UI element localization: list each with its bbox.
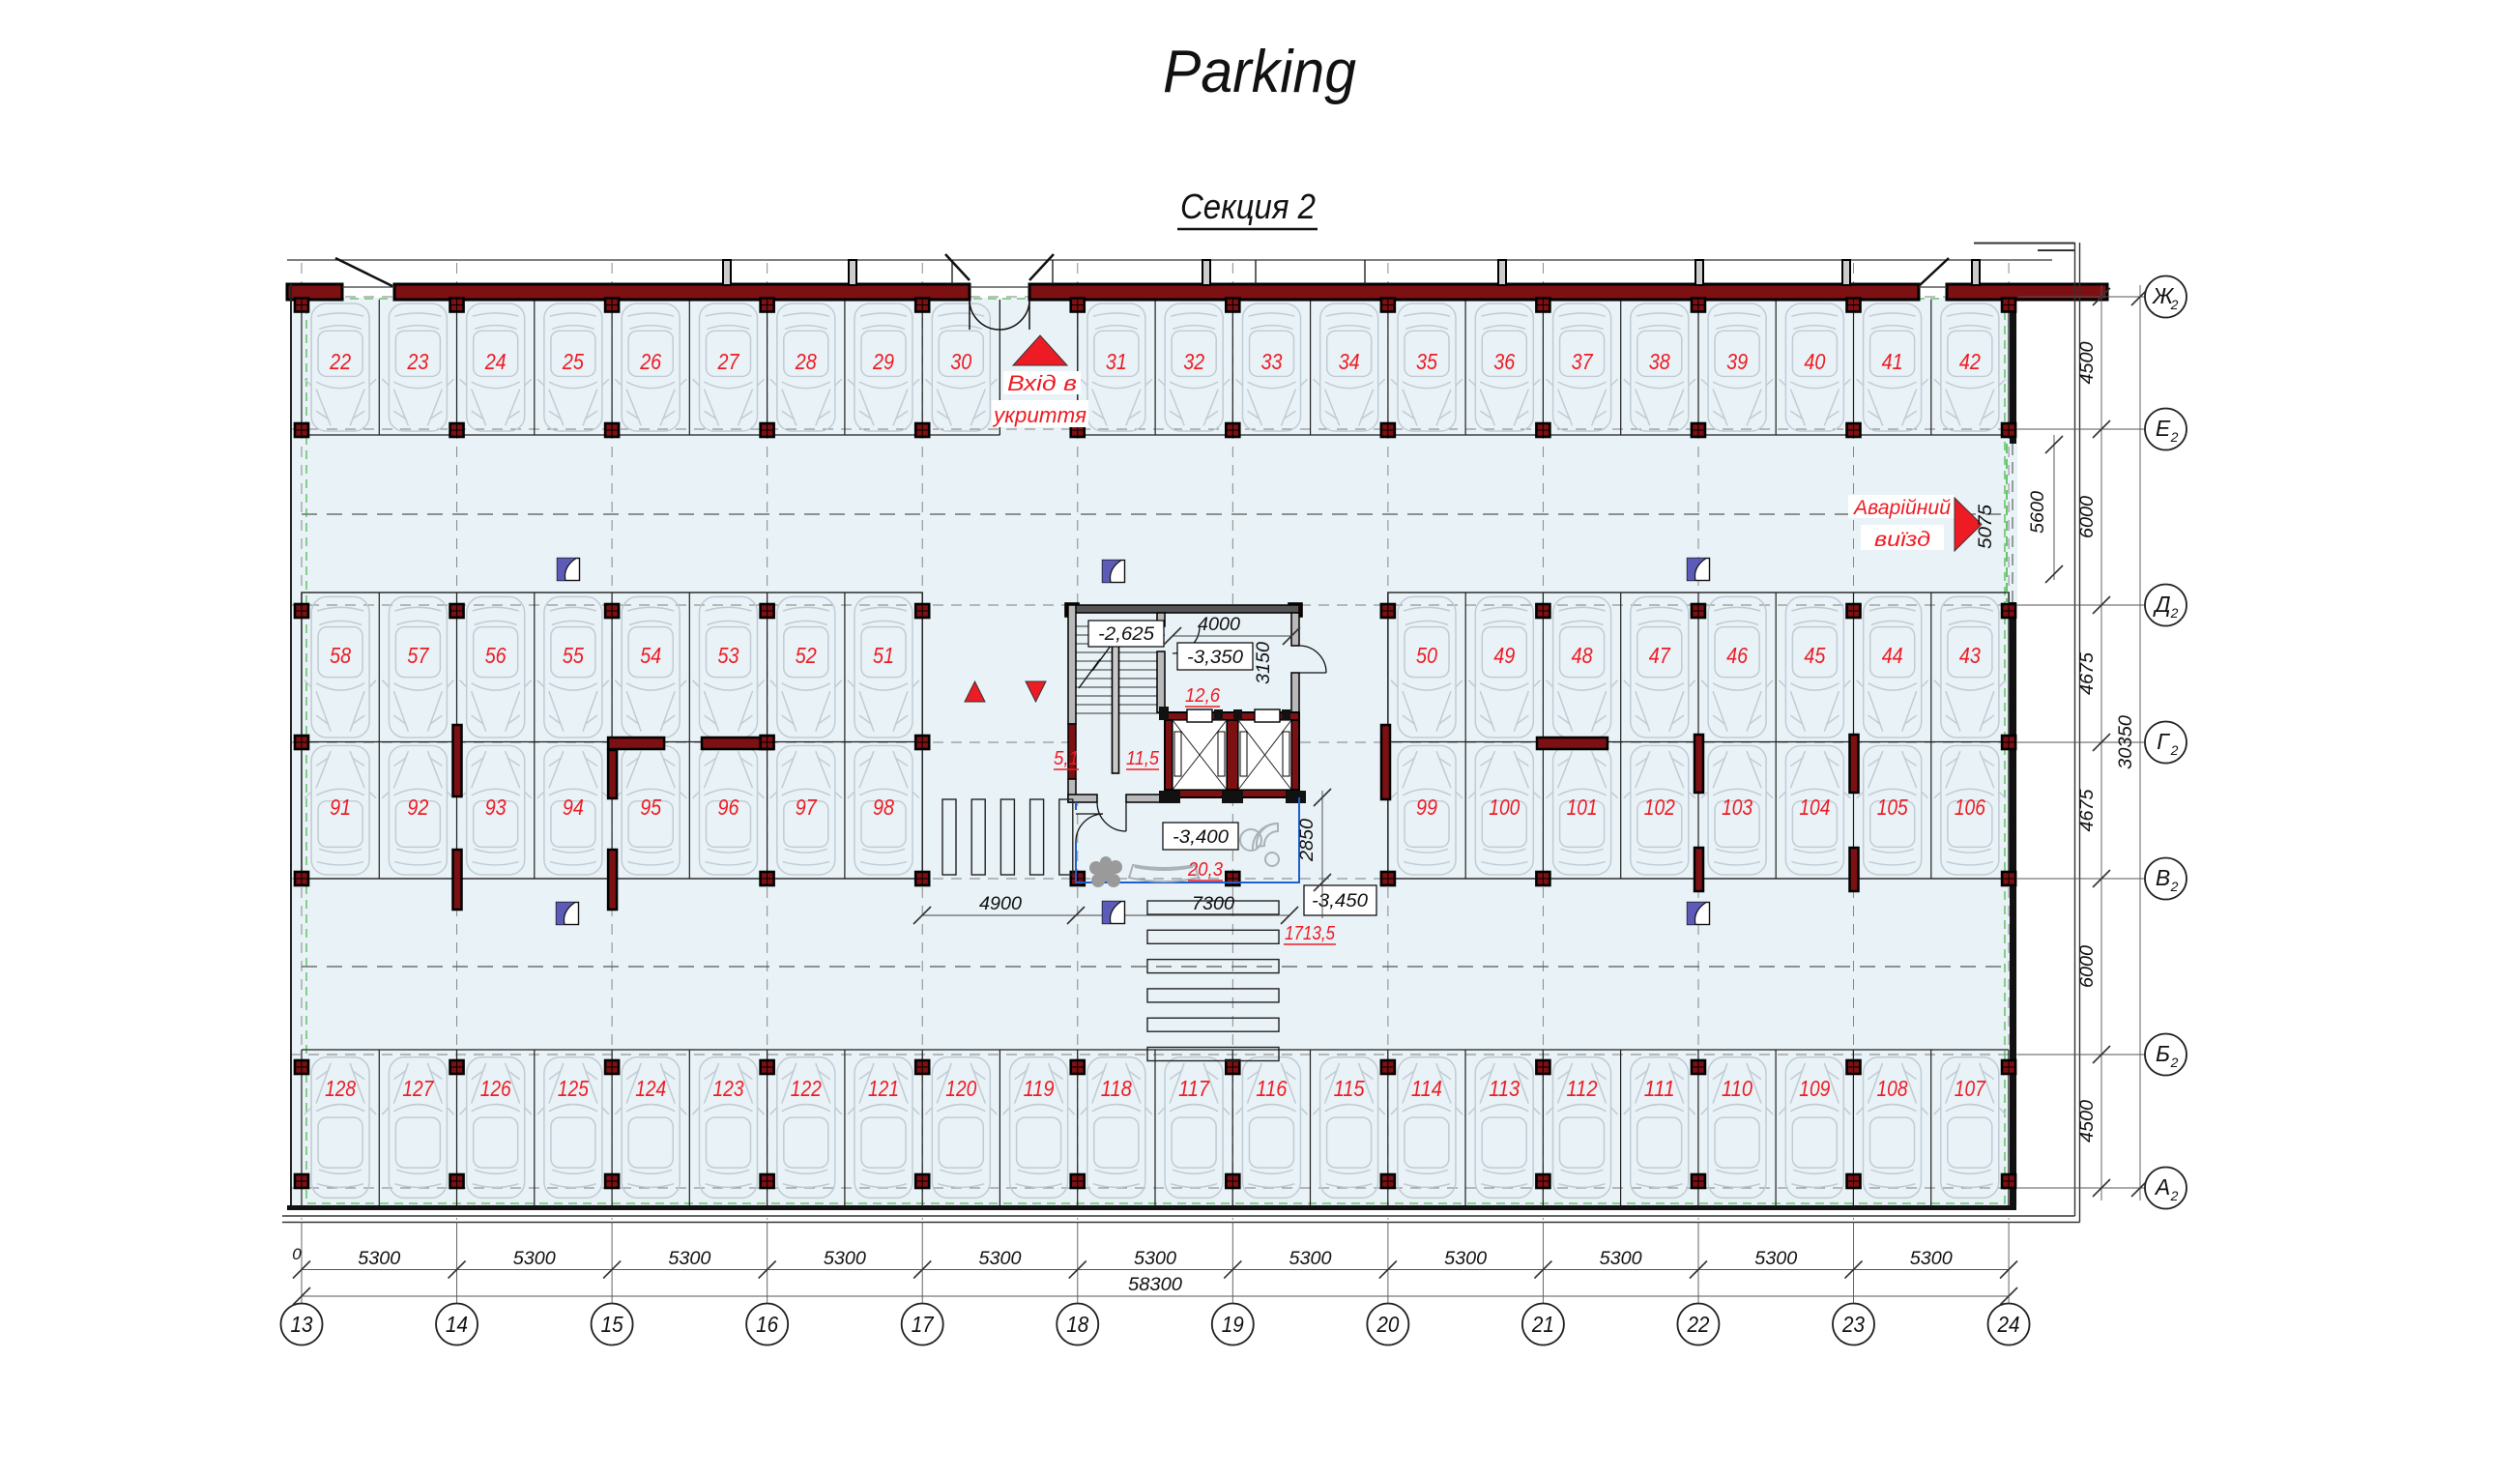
svg-text:26: 26 [639,349,661,374]
svg-text:-3,450: -3,450 [1312,891,1368,911]
svg-text:2: 2 [2170,879,2179,894]
svg-text:22: 22 [329,349,351,374]
svg-text:24: 24 [1997,1312,2020,1337]
svg-text:5300: 5300 [358,1249,400,1269]
svg-text:0: 0 [292,1245,302,1263]
svg-text:Г: Г [2157,729,2170,754]
svg-text:20,3: 20,3 [1187,859,1223,881]
svg-text:56: 56 [485,643,507,668]
svg-text:5300: 5300 [513,1249,556,1269]
svg-text:114: 114 [1411,1076,1442,1101]
svg-text:Parking: Parking [1163,39,1356,105]
svg-text:25: 25 [562,349,584,374]
svg-text:32: 32 [1183,349,1204,374]
svg-text:Вхід в: Вхід в [1007,371,1077,395]
svg-text:А: А [2154,1174,2170,1200]
svg-text:5300: 5300 [1444,1249,1487,1269]
svg-text:-3,350: -3,350 [1187,648,1243,668]
svg-text:49: 49 [1493,643,1515,668]
svg-text:29: 29 [872,349,894,374]
svg-text:30: 30 [950,349,971,374]
svg-text:93: 93 [485,795,507,820]
svg-text:47: 47 [1649,643,1671,668]
svg-text:51: 51 [873,643,894,668]
svg-text:5300: 5300 [978,1249,1021,1269]
svg-text:12,6: 12,6 [1185,685,1221,707]
svg-text:5300: 5300 [1134,1249,1176,1269]
svg-text:96: 96 [718,795,739,820]
svg-text:6000: 6000 [2077,496,2098,538]
svg-text:121: 121 [868,1076,899,1101]
svg-text:2: 2 [2170,1055,2179,1070]
svg-text:119: 119 [1024,1076,1055,1101]
svg-text:105: 105 [1877,795,1908,820]
svg-text:4500: 4500 [2077,1100,2098,1142]
svg-text:В: В [2156,865,2170,890]
svg-text:118: 118 [1101,1076,1132,1101]
svg-text:42: 42 [1959,349,1981,374]
svg-text:34: 34 [1339,349,1360,374]
svg-text:5300: 5300 [668,1249,710,1269]
svg-text:30350: 30350 [2116,715,2136,769]
svg-text:5,1: 5,1 [1054,748,1079,769]
svg-text:117: 117 [1178,1076,1210,1101]
svg-text:98: 98 [873,795,894,820]
svg-text:20: 20 [1376,1312,1399,1337]
svg-text:1713,5: 1713,5 [1285,923,1336,944]
svg-text:укриття: укриття [992,403,1086,427]
svg-text:58300: 58300 [1128,1275,1182,1295]
svg-text:35: 35 [1416,349,1437,374]
svg-text:Аварійний: Аварійний [1852,497,1951,519]
svg-text:122: 122 [791,1076,822,1101]
svg-text:111: 111 [1644,1076,1675,1101]
svg-text:107: 107 [1955,1076,1986,1101]
svg-text:91: 91 [330,795,351,820]
svg-text:2850: 2850 [1297,819,1318,862]
svg-text:2: 2 [2170,742,2179,758]
svg-text:4500: 4500 [2077,341,2098,384]
svg-text:2: 2 [2170,429,2179,445]
svg-text:33: 33 [1261,349,1283,374]
svg-text:4675: 4675 [2077,652,2098,695]
svg-text:50: 50 [1416,643,1437,668]
svg-text:95: 95 [640,795,661,820]
svg-text:11,5: 11,5 [1126,748,1160,769]
svg-text:41: 41 [1882,349,1903,374]
svg-text:43: 43 [1959,643,1981,668]
svg-text:120: 120 [945,1076,976,1101]
svg-text:2: 2 [2170,1188,2179,1203]
svg-text:103: 103 [1722,795,1752,820]
svg-text:38: 38 [1649,349,1670,374]
svg-text:92: 92 [407,795,428,820]
svg-text:18: 18 [1066,1312,1088,1337]
svg-text:44: 44 [1882,643,1903,668]
svg-text:116: 116 [1256,1076,1287,1101]
svg-text:106: 106 [1955,795,1985,820]
svg-text:4675: 4675 [2077,789,2098,831]
svg-text:46: 46 [1726,643,1748,668]
svg-text:110: 110 [1722,1076,1752,1101]
svg-text:37: 37 [1572,349,1594,374]
svg-text:48: 48 [1572,643,1593,668]
svg-text:-3,400: -3,400 [1173,827,1229,848]
svg-text:100: 100 [1489,795,1520,820]
svg-text:21: 21 [1531,1312,1554,1337]
svg-text:5300: 5300 [1754,1249,1797,1269]
svg-text:126: 126 [480,1076,511,1101]
svg-text:23: 23 [407,349,429,374]
svg-text:108: 108 [1877,1076,1908,1101]
svg-text:58: 58 [330,643,351,668]
svg-text:3150: 3150 [1254,642,1274,684]
svg-text:54: 54 [640,643,661,668]
svg-text:99: 99 [1416,795,1437,820]
svg-text:115: 115 [1334,1076,1365,1101]
svg-text:124: 124 [635,1076,666,1101]
svg-text:53: 53 [718,643,739,668]
svg-text:-2,625: -2,625 [1098,624,1154,645]
svg-text:4900: 4900 [979,894,1022,914]
svg-text:55: 55 [563,643,584,668]
svg-text:127: 127 [402,1076,434,1101]
svg-text:125: 125 [558,1076,589,1101]
svg-text:5300: 5300 [1600,1249,1642,1269]
svg-text:52: 52 [796,643,817,668]
svg-text:Б: Б [2156,1041,2170,1066]
svg-text:7300: 7300 [1192,894,1234,914]
svg-text:Д: Д [2152,592,2170,617]
svg-text:Секция 2: Секция 2 [1180,187,1316,226]
svg-text:128: 128 [325,1076,356,1101]
svg-text:39: 39 [1726,349,1748,374]
svg-text:15: 15 [601,1312,623,1337]
svg-text:16: 16 [756,1312,778,1337]
svg-text:109: 109 [1799,1076,1830,1101]
svg-text:94: 94 [563,795,584,820]
svg-text:13: 13 [291,1312,313,1337]
svg-text:5600: 5600 [2028,491,2048,534]
svg-text:23: 23 [1841,1312,1865,1337]
svg-text:102: 102 [1644,795,1675,820]
svg-text:31: 31 [1106,349,1127,374]
svg-text:виїзд: виїзд [1874,529,1930,551]
svg-text:57: 57 [407,643,429,668]
svg-text:17: 17 [912,1312,935,1337]
svg-text:112: 112 [1567,1076,1598,1101]
svg-text:5300: 5300 [824,1249,866,1269]
svg-text:6000: 6000 [2077,945,2098,988]
svg-text:45: 45 [1804,643,1825,668]
svg-text:5300: 5300 [1910,1249,1953,1269]
svg-text:36: 36 [1493,349,1515,374]
svg-text:104: 104 [1799,795,1830,820]
svg-text:40: 40 [1804,349,1825,374]
svg-text:2: 2 [2170,605,2179,621]
svg-text:22: 22 [1687,1312,1710,1337]
svg-text:97: 97 [796,795,818,820]
svg-text:5300: 5300 [1289,1249,1332,1269]
svg-text:14: 14 [446,1312,468,1337]
svg-text:19: 19 [1222,1312,1244,1337]
svg-text:24: 24 [484,349,507,374]
svg-text:27: 27 [717,349,740,374]
svg-text:2: 2 [2170,297,2179,312]
svg-text:5075: 5075 [1976,505,1996,549]
svg-text:101: 101 [1567,795,1598,820]
svg-text:Е: Е [2156,416,2171,441]
svg-text:123: 123 [713,1076,744,1101]
svg-text:28: 28 [795,349,817,374]
svg-text:113: 113 [1489,1076,1520,1101]
svg-text:4000: 4000 [1198,615,1240,635]
